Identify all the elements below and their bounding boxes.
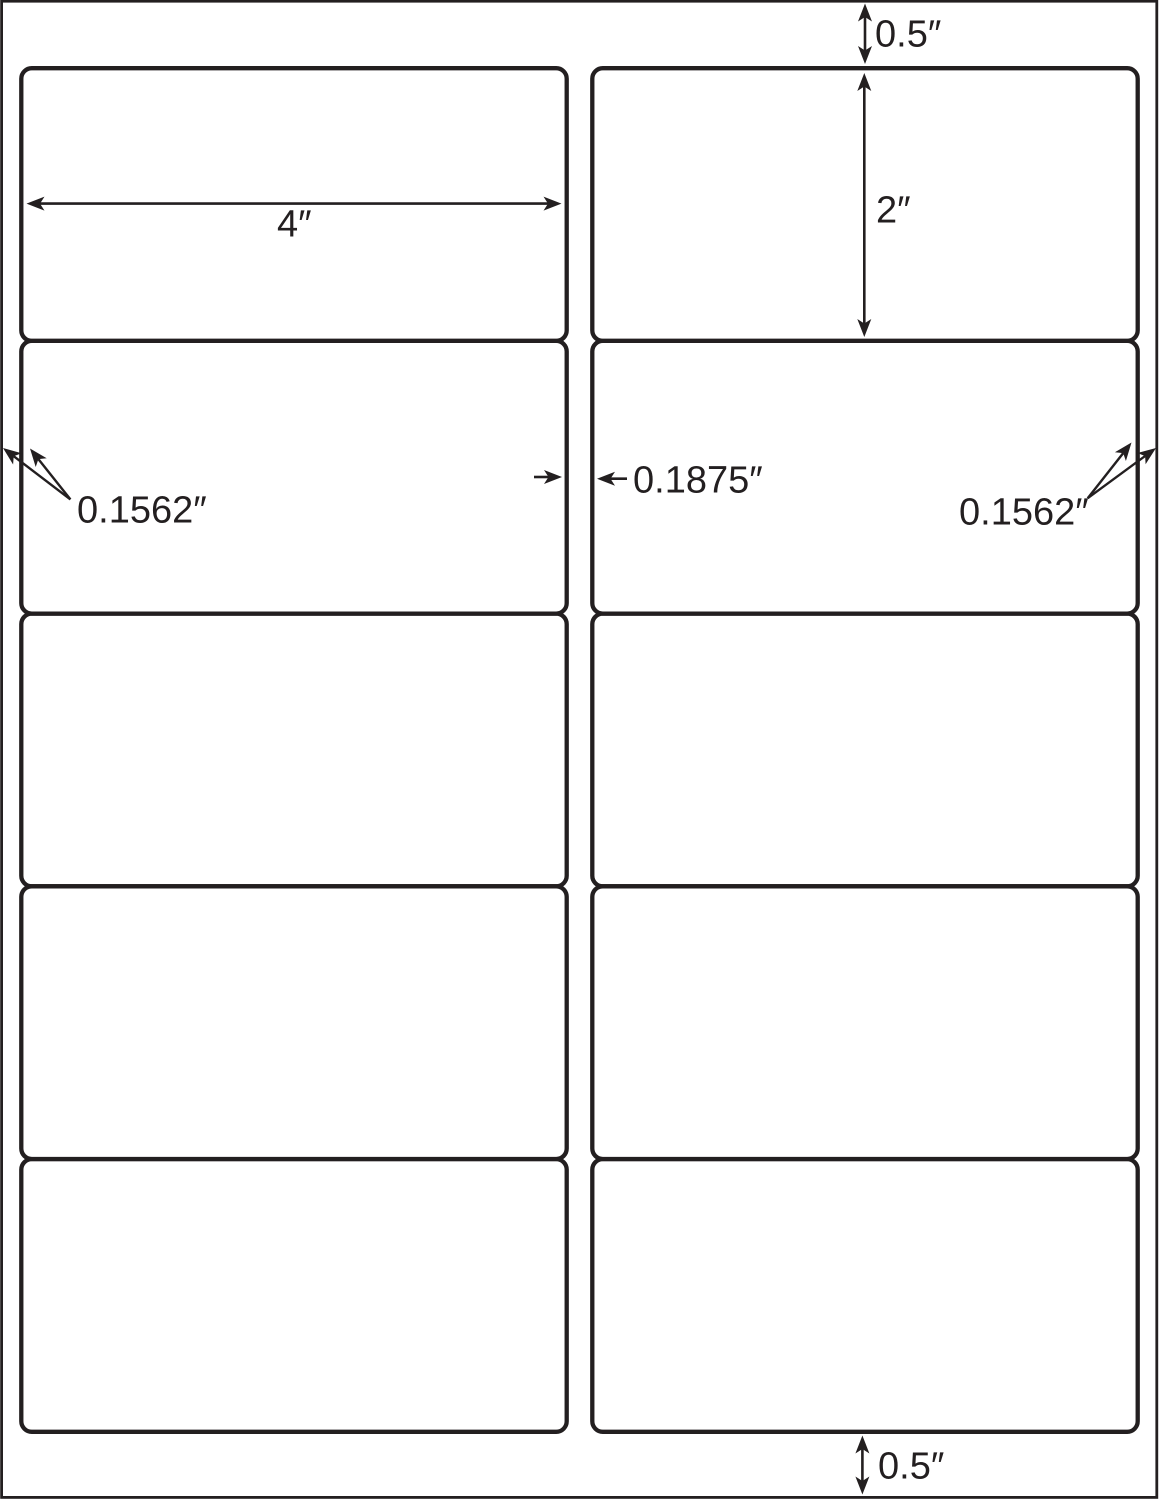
svg-text:0.1562″: 0.1562″ — [959, 492, 1089, 534]
svg-text:0.5″: 0.5″ — [878, 1446, 944, 1488]
svg-text:0.1562″: 0.1562″ — [77, 490, 207, 532]
svg-text:4″: 4″ — [277, 204, 312, 246]
svg-text:0.5″: 0.5″ — [875, 14, 941, 56]
svg-text:2″: 2″ — [876, 190, 911, 232]
svg-text:0.1875″: 0.1875″ — [633, 460, 763, 502]
